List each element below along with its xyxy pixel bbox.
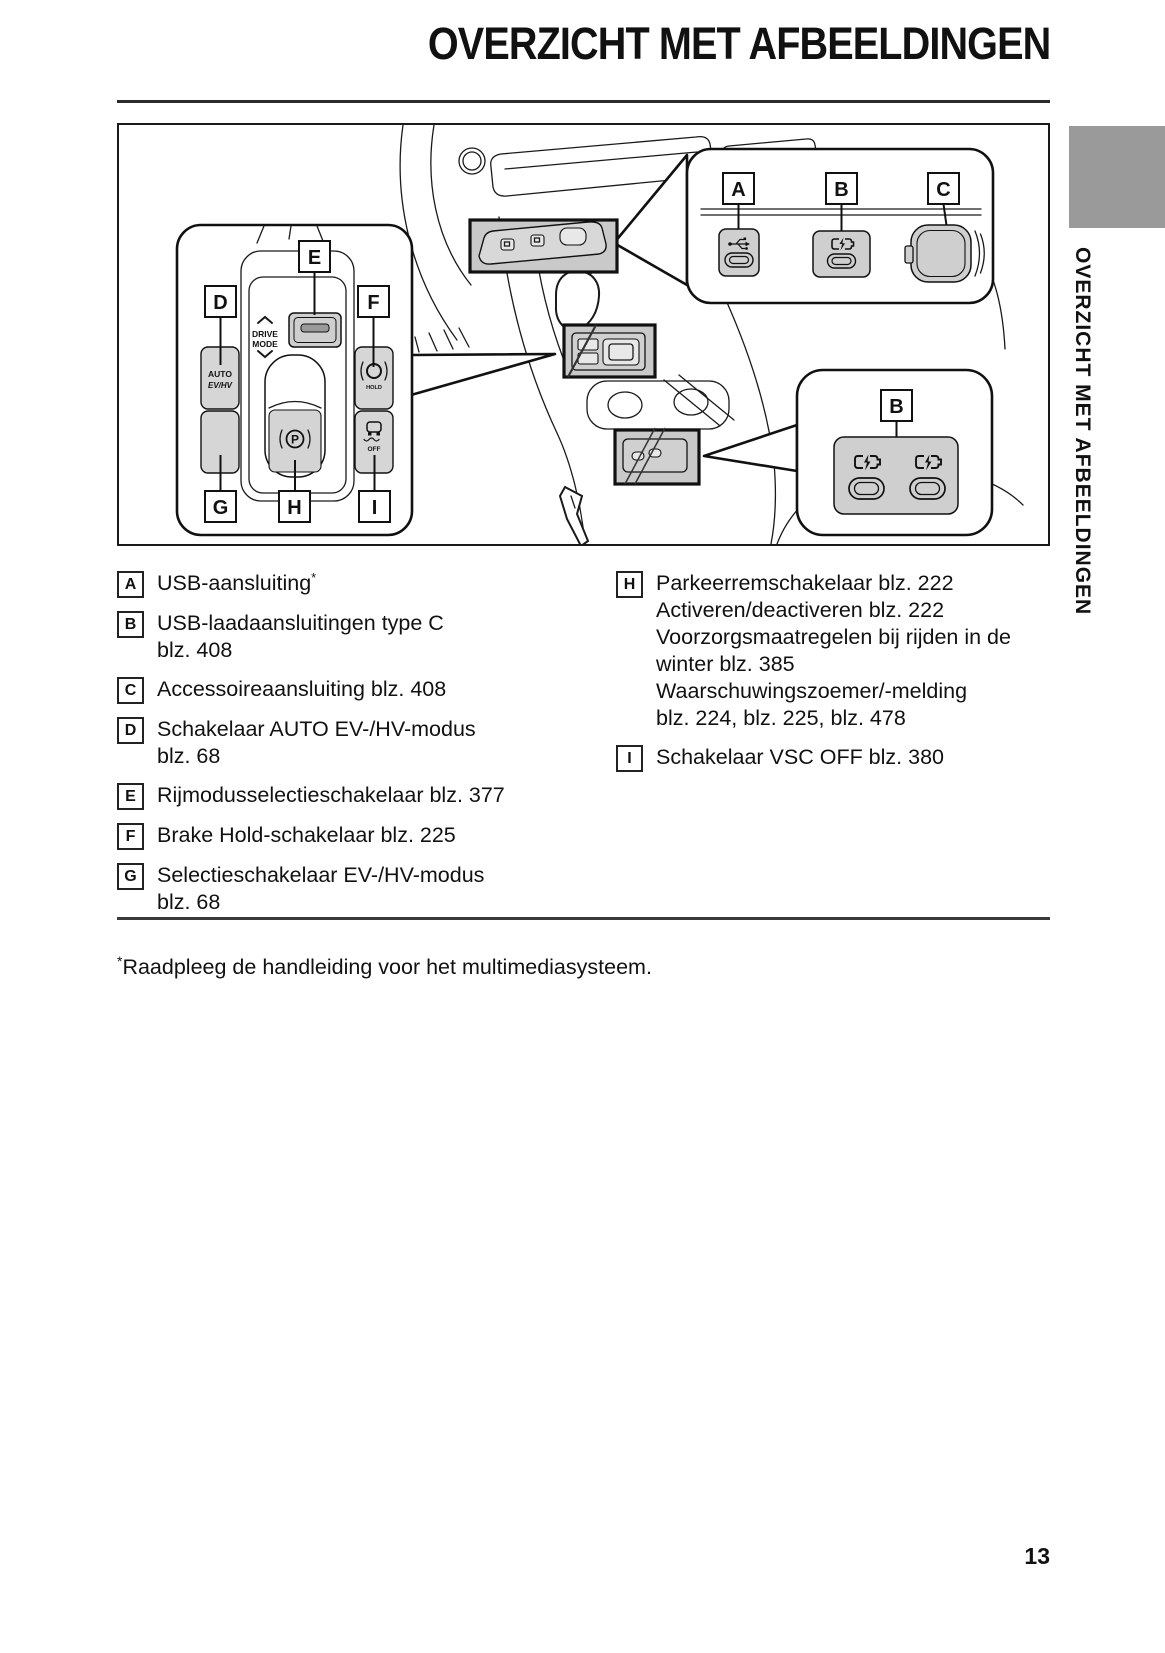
sidebar-chapter-text: OVERZICHT MET AFBEELDINGEN: [1070, 247, 1094, 615]
legend-item-b: B USB-laadaansluitingen type C blz. 408: [117, 610, 587, 664]
figure-label-b: B: [826, 173, 857, 204]
legend-text: Selectieschakelaar EV-/HV-modus: [157, 863, 484, 887]
legend-item-a: A USB-aansluiting*: [117, 570, 587, 598]
page-number: 13: [900, 1543, 1050, 1570]
figure-label-c: C: [928, 173, 959, 204]
title-divider-rule: [117, 100, 1050, 103]
legend-item-g: G Selectieschakelaar EV-/HV-modus blz. 6…: [117, 862, 587, 916]
svg-text:F: F: [367, 292, 379, 314]
legend-text-line: Voorzorgsmaatregelen bij rijden in de: [656, 624, 1050, 651]
legend-text: USB-laadaansluitingen type C: [157, 611, 444, 635]
legend-key-box: H: [616, 571, 643, 598]
legend-item-f: F Brake Hold-schakelaar blz. 225: [117, 822, 587, 850]
svg-text:DRIVE: DRIVE: [252, 329, 278, 339]
legend-text: Schakelaar AUTO EV-/HV-modus: [157, 717, 476, 741]
legend-key-box: B: [117, 611, 144, 638]
legend-text-line: Parkeerremschakelaar blz. 222: [656, 570, 1050, 597]
rear-usb-callout: B: [797, 370, 992, 535]
pointer-wedge-bottom: [704, 425, 797, 471]
switch-panel-callout: DRIVE MODE P: [177, 225, 412, 535]
legend-key-box: C: [117, 677, 144, 704]
svg-text:D: D: [213, 292, 227, 314]
figure-label-a: A: [723, 173, 754, 204]
legend-key-box: I: [616, 745, 643, 772]
svg-text:H: H: [287, 497, 301, 519]
figure-label-i: I: [359, 491, 390, 522]
figure-label-d: D: [205, 286, 236, 317]
svg-text:P: P: [291, 433, 299, 447]
legend-text: USB-aansluiting: [157, 571, 311, 595]
usb-charge-port: [813, 231, 870, 277]
legend-left-column: A USB-aansluiting* B USB-laadaansluiting…: [117, 570, 587, 928]
legend-key-box: A: [117, 571, 144, 598]
svg-text:B: B: [834, 179, 848, 201]
legend-item-d: D Schakelaar AUTO EV-/HV-modus blz. 68: [117, 716, 587, 770]
legend-key-box: F: [117, 823, 144, 850]
svg-text:A: A: [731, 179, 745, 201]
footnote-text: Raadpleeg de handleiding voor het multim…: [122, 955, 651, 979]
svg-text:E: E: [308, 247, 321, 269]
legend-page-ref: blz. 68: [157, 743, 587, 770]
legend-page-ref: blz. 68: [157, 889, 587, 916]
legend-text-line: winter blz. 385: [656, 651, 1050, 678]
parking-brake-switch: P: [265, 355, 325, 477]
legend-text-line: Waarschuwingszoemer/-melding: [656, 678, 1050, 705]
legend-item-i: I Schakelaar VSC OFF blz. 380: [616, 744, 1050, 772]
figure-label-h: H: [279, 491, 310, 522]
front-ports-callout: A B C: [687, 149, 993, 303]
figure-label-g: G: [205, 491, 236, 522]
legend-key-box: D: [117, 717, 144, 744]
svg-text:B: B: [889, 396, 903, 418]
svg-text:I: I: [372, 497, 378, 519]
legend-right-column: H Parkeerremschakelaar blz. 222 Activere…: [616, 570, 1050, 784]
legend-text-line: Activeren/deactiveren blz. 222: [656, 597, 1050, 624]
dash-ports-inset: [470, 220, 617, 272]
legend-divider-rule: [117, 917, 1050, 920]
legend-item-e: E Rijmodusselectieschakelaar blz. 377: [117, 782, 587, 810]
page-title: OVERZICHT MET AFBEELDINGEN: [428, 18, 1050, 70]
chapter-gray-tab: [1069, 126, 1165, 228]
svg-text:C: C: [936, 179, 950, 201]
figure-label-e: E: [299, 241, 330, 272]
svg-text:G: G: [213, 497, 229, 519]
legend-key-box: G: [117, 863, 144, 890]
legend-text: Accessoireaansluiting blz. 408: [157, 677, 446, 701]
manual-page: OVERZICHT MET AFBEELDINGEN OVERZICHT MET…: [0, 0, 1165, 1653]
svg-text:OFF: OFF: [368, 446, 381, 453]
svg-text:HOLD: HOLD: [366, 385, 382, 391]
legend-text-line: blz. 224, blz. 225, blz. 478: [656, 705, 1050, 732]
svg-text:EV/HV: EV/HV: [208, 381, 233, 390]
footnote: *Raadpleeg de handleiding voor het multi…: [117, 955, 652, 980]
legend-text: Rijmodusselectieschakelaar blz. 377: [157, 783, 505, 807]
legend-item-c: C Accessoireaansluiting blz. 408: [117, 676, 587, 704]
console-diagram-figure: DRIVE MODE P: [117, 123, 1050, 546]
figure-label-b-rear: B: [881, 390, 912, 421]
rear-console-ports-inset: [615, 428, 699, 484]
pointer-wedge-top: [614, 155, 687, 285]
footnote-marker: *: [311, 570, 316, 585]
legend-text: Brake Hold-schakelaar blz. 225: [157, 823, 456, 847]
svg-text:AUTO: AUTO: [208, 369, 232, 379]
figure-label-f: F: [358, 286, 389, 317]
legend-key-box: E: [117, 783, 144, 810]
socket-lid-tab: [905, 246, 913, 263]
legend-text-line: Schakelaar VSC OFF blz. 380: [656, 744, 1050, 771]
shifter-console-inset: [564, 325, 655, 377]
legend-item-h: H Parkeerremschakelaar blz. 222 Activere…: [616, 570, 1050, 732]
legend-page-ref: blz. 408: [157, 637, 587, 664]
console-diagram: DRIVE MODE P: [119, 125, 1048, 544]
svg-text:MODE: MODE: [252, 339, 278, 349]
usb-data-port: [719, 229, 759, 276]
